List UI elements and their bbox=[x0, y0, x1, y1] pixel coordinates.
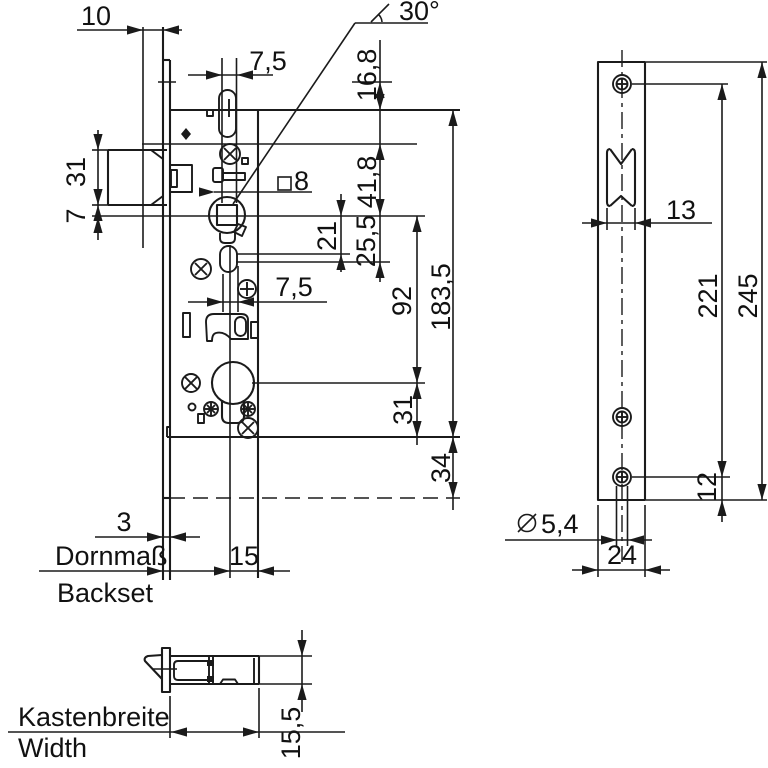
left-guide-detail bbox=[183, 313, 190, 337]
dim-faceplate-width: 24 bbox=[607, 540, 637, 570]
screw-hole-bottom bbox=[613, 468, 631, 486]
spindle-follower bbox=[209, 197, 246, 243]
angle-callout: 30° bbox=[233, 0, 440, 204]
dim-centre-distance: 92 bbox=[387, 286, 417, 316]
latch-bolt bbox=[108, 150, 192, 205]
dim-offset-top: 7,5 bbox=[249, 46, 287, 76]
backset-dimension: Dornmaß Backset 15 bbox=[39, 541, 290, 608]
square-symbol bbox=[278, 177, 291, 190]
dim-7: 7 bbox=[61, 208, 91, 223]
dim-case-height: 183,5 bbox=[426, 263, 456, 331]
technical-drawing-page: 10 7,5 30° 8 bbox=[0, 0, 768, 768]
case-profile bbox=[170, 656, 259, 684]
latch-cutout bbox=[607, 149, 635, 206]
small-square-detail bbox=[242, 158, 248, 164]
small-pin bbox=[189, 404, 196, 411]
dim-follower-to-slot: 25,5 bbox=[351, 215, 381, 268]
dim-34: 34 bbox=[426, 453, 456, 483]
screw-cylinder-left bbox=[182, 374, 200, 392]
dim-hole-diameter: 5,4 bbox=[541, 509, 579, 539]
screw-center bbox=[238, 280, 256, 298]
dim-faceplate-thickness: 3 bbox=[116, 507, 131, 537]
dim-12: 12 bbox=[692, 472, 722, 502]
lock-dimension-drawing: 10 7,5 30° 8 bbox=[0, 0, 768, 768]
dim-angle: 30° bbox=[399, 0, 440, 26]
screw-left bbox=[191, 259, 211, 279]
dim-case-to-follower: 41,8 bbox=[352, 156, 382, 209]
latch-profile bbox=[145, 655, 177, 679]
hatched-screw-left bbox=[204, 402, 218, 416]
dim-offset-mid: 7,5 bbox=[275, 272, 313, 302]
dim-latch-height: 31 bbox=[61, 157, 91, 187]
screw-bottom bbox=[238, 418, 258, 438]
small-rect-detail bbox=[198, 414, 204, 423]
dim-cutout-width: 13 bbox=[666, 195, 696, 225]
screw-hole-top bbox=[613, 75, 631, 93]
diamond-mark bbox=[181, 128, 191, 140]
angle-symbol bbox=[371, 4, 389, 22]
dim-cylinder-to-bottom: 31 bbox=[388, 395, 418, 425]
dim-top-to-case: 16,8 bbox=[352, 49, 382, 102]
backset-label-en: Backset bbox=[57, 578, 154, 608]
dim-case-thickness: 15,5 bbox=[276, 707, 306, 760]
case-width-label-en: Width bbox=[18, 733, 87, 763]
screw-hole-middle bbox=[613, 408, 631, 426]
dim-15: 15 bbox=[229, 541, 259, 571]
dim-21: 21 bbox=[312, 221, 342, 251]
spring-bolt-detail bbox=[213, 168, 245, 182]
front-view-dimensions: 10 7,5 30° 8 bbox=[39, 0, 458, 608]
diameter-symbol bbox=[518, 514, 536, 532]
slider-detail bbox=[206, 314, 248, 341]
hole-diameter-dimension: 5,4 bbox=[505, 486, 652, 546]
backset-label-de: Dornmaß bbox=[55, 541, 168, 571]
dim-square-spindle: 8 bbox=[294, 166, 309, 196]
faceplate-profile bbox=[162, 648, 170, 692]
pin-slot bbox=[220, 246, 237, 272]
faceplate-view bbox=[598, 50, 645, 562]
dim-hole-spacing: 221 bbox=[693, 273, 723, 318]
dim-latch-protrusion: 10 bbox=[81, 1, 111, 31]
hatched-screw-right bbox=[241, 402, 255, 416]
dim-faceplate-length: 245 bbox=[733, 273, 763, 318]
bottom-view: 15,5 Kastenbreite Width bbox=[8, 630, 345, 763]
case-width-label-de: Kastenbreite bbox=[18, 702, 170, 732]
